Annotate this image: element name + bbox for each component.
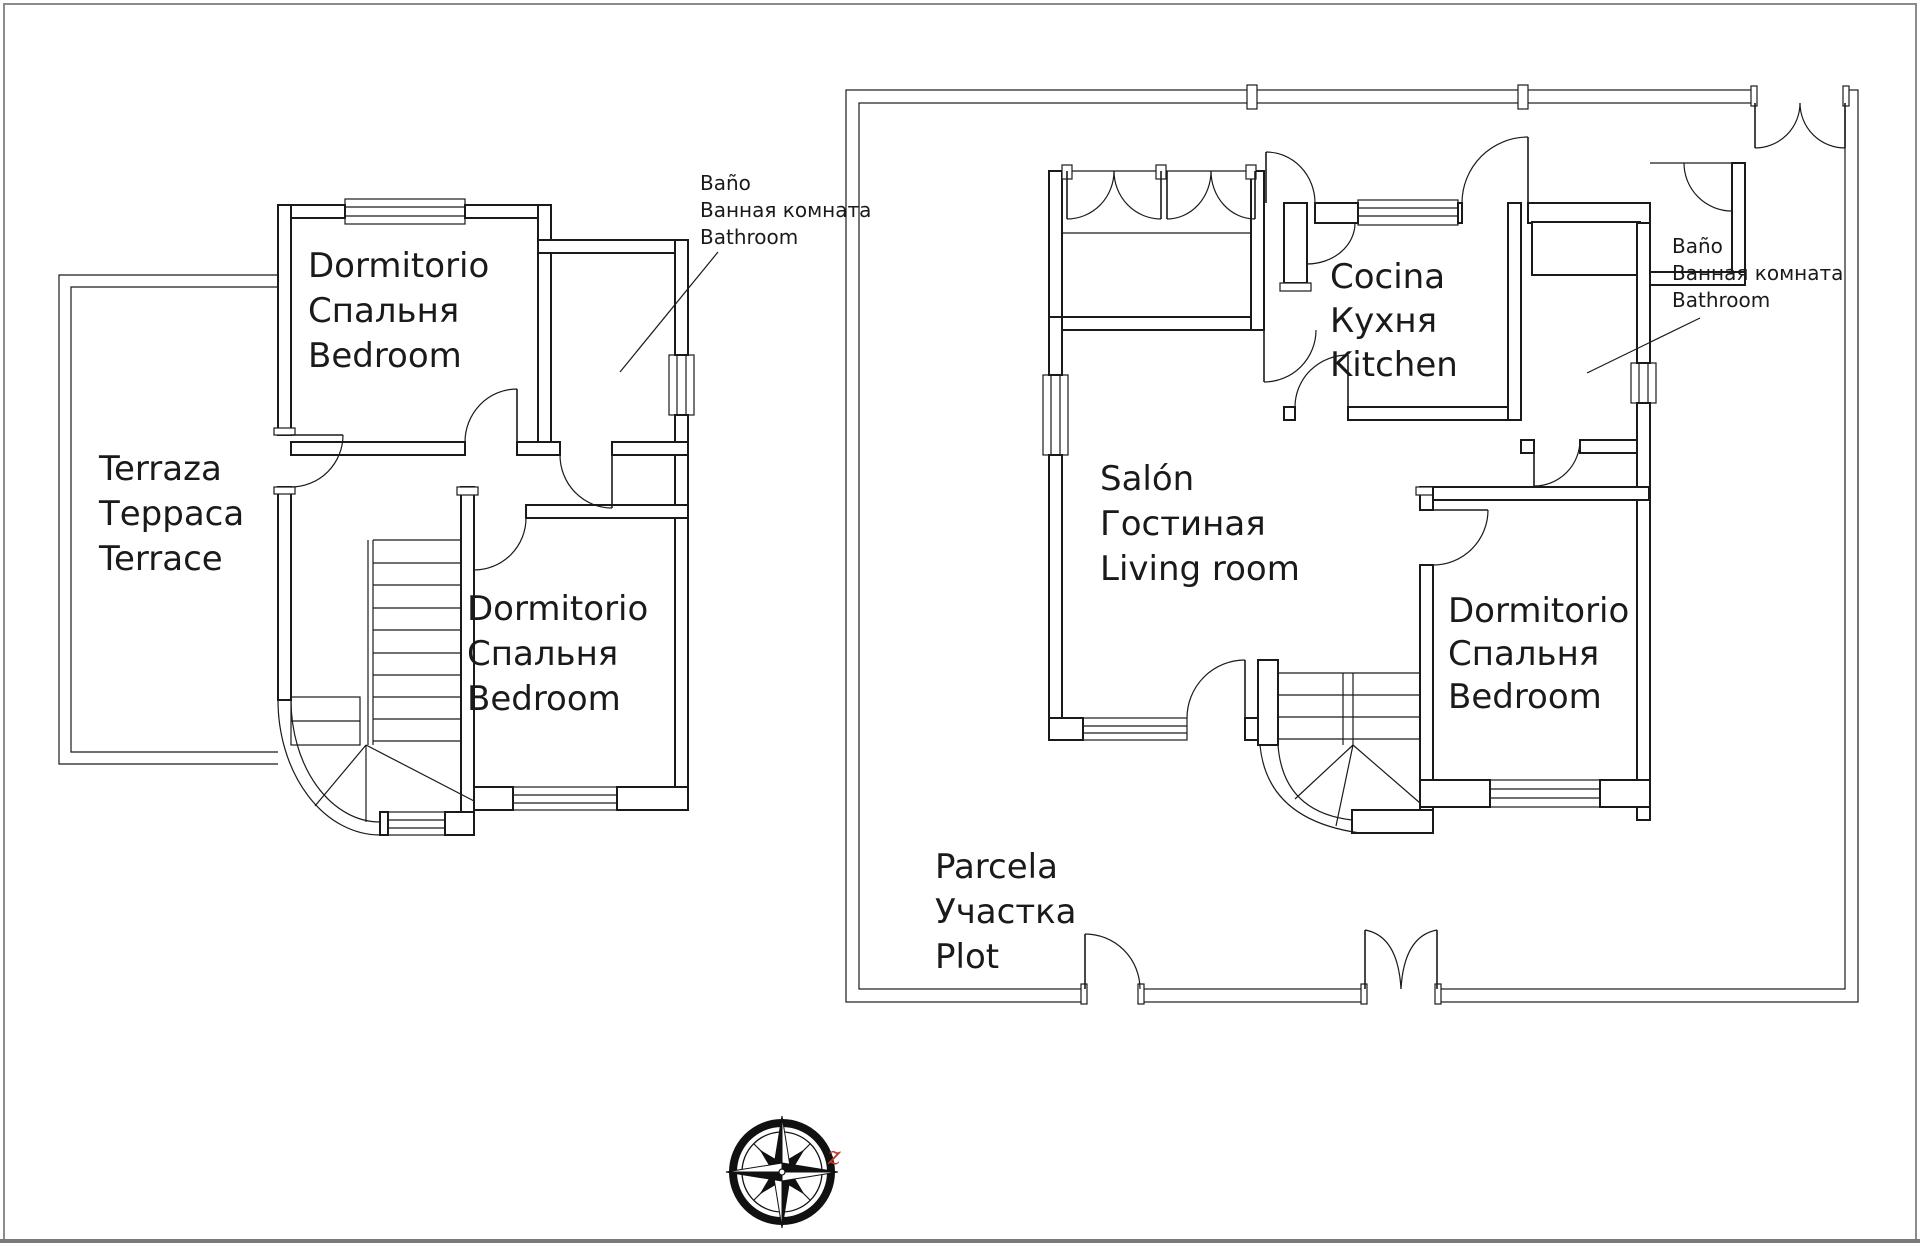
upper-bathroom-note-es: Baño [700,171,751,195]
window-symbol-kitchen [1358,200,1458,225]
gate-double-top [1755,103,1845,148]
staircase-ground-floor [1278,673,1420,826]
ground-bathroom-note-ru: Ванная комната [1672,261,1843,285]
lower-bedroom-label-es: Dormitorio [467,589,648,629]
ground-bedroom-label-ru: Спальня [1448,634,1599,674]
window-symbol-living-room-left [1043,375,1068,455]
ground-bedroom-label-es: Dormitorio [1448,591,1629,631]
living-room-label-ru: Гостиная [1100,504,1266,544]
gate-double-bottom [1365,930,1437,989]
door-terrace [274,428,343,494]
top-bedroom-label-ru: Спальня [308,291,459,331]
lower-bedroom-label: Dormitorio Спальня Bedroom [467,589,648,719]
door-entrance-left [1266,152,1315,203]
plot-label-ru: Участка [935,892,1077,932]
compass-center-dot [779,1169,785,1175]
ground-floor-plan: Parcela Участка Plot Salón Гостиная Livi… [846,84,1858,1008]
lower-bedroom-label-en: Bedroom [467,679,621,719]
plot-label-en: Plot [935,937,999,977]
compass-rose: z [726,1116,841,1228]
living-room-label: Salón Гостиная Living room [1100,459,1300,589]
ground-bedroom-label: Dormitorio Спальня Bedroom [1448,591,1629,717]
french-doors-left-porch [1062,165,1256,219]
window-symbol-ground-bathroom [1631,363,1656,403]
terrace-label-es: Terraza [98,449,222,489]
floor-plan-drawing: Terraza Терраса Terrace Dormitorio Спаль… [0,0,1920,1246]
upper-bathroom-annotation: Baño Ванная комната Bathroom [620,171,871,372]
door-upper-bathroom [560,455,612,508]
top-bedroom-label-en: Bedroom [308,336,462,376]
kitchen-label-en: Kitchen [1330,345,1458,385]
ground-bedroom-label-en: Bedroom [1448,677,1602,717]
terrace-label-en: Terrace [98,539,223,579]
lower-bedroom-label-ru: Спальня [467,634,618,674]
plot-label-es: Parcela [935,847,1058,887]
window-symbol-lower-bedroom [513,787,617,810]
window-symbol-upper-bathroom [669,355,694,415]
terrace-label: Terraza Терраса Terrace [98,449,244,579]
upper-floor-plan: Terraza Терраса Terrace Dormitorio Спаль… [59,171,871,835]
gate-single [1085,934,1140,989]
window-symbol-living-room-bottom [1083,718,1187,740]
upper-bathroom-leader-line [620,252,718,372]
living-room-label-en: Living room [1100,549,1300,589]
top-bedroom-label-es: Dormitorio [308,246,489,286]
door-lower-bedroom [474,518,526,570]
ground-bathroom-note-es: Baño [1672,234,1723,258]
terrace-label-ru: Терраса [98,494,244,534]
kitchen-label: Cocina Кухня Kitchen [1330,257,1458,385]
living-room-label-es: Salón [1100,459,1194,499]
compass-east-letter: z [827,1142,841,1170]
kitchen-label-es: Cocina [1330,257,1445,297]
window-symbol-top-bedroom [345,199,465,224]
floor-plan-page: Terraza Терраса Terrace Dormitorio Спаль… [0,0,1920,1246]
plot-label: Parcela Участка Plot [935,847,1077,977]
staircase-upper-floor [291,540,474,822]
door-hall-living-room [1264,330,1316,382]
ground-bathroom-note-en: Bathroom [1672,288,1770,312]
door-ground-bathroom [1534,440,1580,486]
top-bedroom-label: Dormitorio Спальня Bedroom [308,246,489,376]
upper-bathroom-note-en: Bathroom [700,225,798,249]
door-entrance-right [1462,137,1528,203]
door-ground-bedroom [1433,510,1488,565]
window-symbol-stair-bay [388,812,445,835]
window-symbol-ground-bedroom [1490,780,1600,807]
door-top-right-porch [1684,163,1732,211]
kitchen-label-ru: Кухня [1330,301,1437,341]
door-top-bedroom [465,389,517,442]
door-living-room-bottom [1187,660,1245,718]
